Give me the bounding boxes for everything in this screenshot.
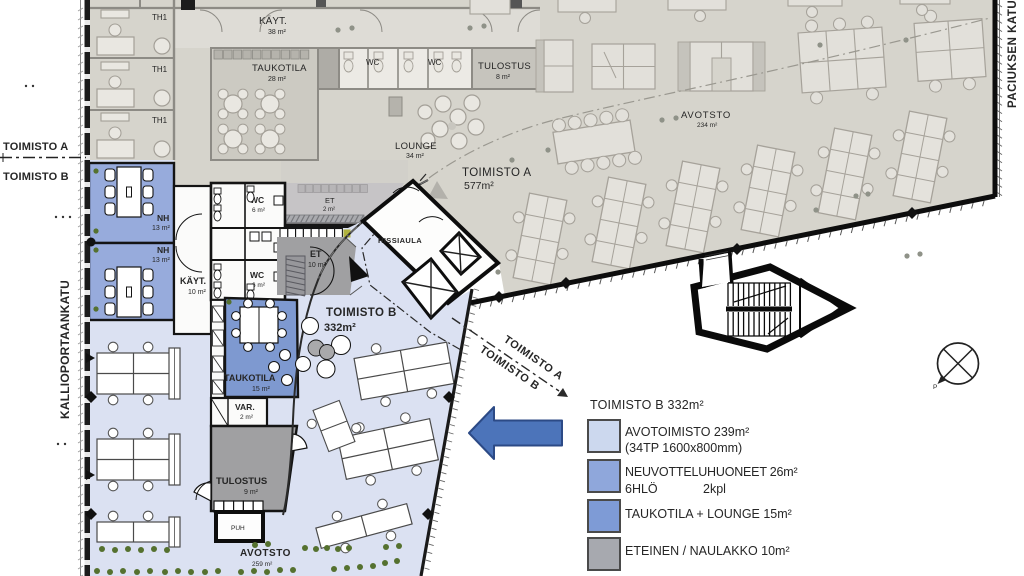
svg-text:ETEINEN / NAULAKKO 10m²: ETEINEN / NAULAKKO 10m² xyxy=(625,544,790,558)
svg-text:TOIMISTO A: TOIMISTO A xyxy=(462,167,531,179)
svg-text:KÄYT.: KÄYT. xyxy=(180,276,206,286)
svg-text:259 m²: 259 m² xyxy=(252,561,273,568)
svg-text:TH1: TH1 xyxy=(152,13,168,22)
svg-text:VAR.: VAR. xyxy=(235,402,255,412)
svg-text:PUH: PUH xyxy=(231,525,245,532)
svg-text:332m²: 332m² xyxy=(324,322,356,334)
svg-text:8 m²: 8 m² xyxy=(496,74,511,81)
svg-text:TULOSTUS: TULOSTUS xyxy=(216,476,267,487)
svg-text:HISSIAULA: HISSIAULA xyxy=(378,236,422,245)
svg-text:ET: ET xyxy=(325,196,335,205)
svg-text:PACIUKSEN KATU: PACIUKSEN KATU xyxy=(1007,0,1019,108)
svg-text:TAUKOTILA + LOUNGE 15m²: TAUKOTILA + LOUNGE 15m² xyxy=(625,507,792,521)
svg-text:P: P xyxy=(933,384,937,391)
svg-text:AVOTSTO: AVOTSTO xyxy=(240,548,291,559)
svg-text:28 m²: 28 m² xyxy=(268,76,287,83)
svg-text:13 m²: 13 m² xyxy=(152,257,171,264)
svg-text:34 m²: 34 m² xyxy=(406,153,425,160)
svg-text:2 m²: 2 m² xyxy=(323,207,335,213)
svg-text:9 m²: 9 m² xyxy=(244,489,259,496)
svg-text:6HLÖ: 6HLÖ xyxy=(625,482,658,496)
svg-text:10 m²: 10 m² xyxy=(188,289,207,296)
svg-text:TOIMISTO B 332m²: TOIMISTO B 332m² xyxy=(590,398,704,412)
svg-text:TAUKOTILA: TAUKOTILA xyxy=(252,63,307,74)
svg-text:577m²: 577m² xyxy=(464,180,494,192)
svg-text:TOIMISTO B: TOIMISTO B xyxy=(3,171,69,183)
svg-text:AVOTOIMISTO 239m²: AVOTOIMISTO 239m² xyxy=(625,425,749,439)
svg-text:TULOSTUS: TULOSTUS xyxy=(478,61,531,72)
svg-text:(34TP 1600x800mm): (34TP 1600x800mm) xyxy=(625,441,742,455)
svg-text:WC: WC xyxy=(366,58,380,67)
svg-text:15 m²: 15 m² xyxy=(252,386,271,393)
svg-text:AVOTSTO: AVOTSTO xyxy=(681,110,731,121)
svg-text:WC: WC xyxy=(428,58,442,67)
svg-text:WC: WC xyxy=(250,270,264,280)
svg-text:ET: ET xyxy=(310,249,322,259)
svg-text:38 m²: 38 m² xyxy=(268,29,287,36)
svg-text:2 m²: 2 m² xyxy=(240,414,254,421)
svg-text:2kpl: 2kpl xyxy=(703,482,726,496)
svg-text:LOUNGE: LOUNGE xyxy=(395,141,437,152)
svg-text:6 m²: 6 m² xyxy=(252,207,266,214)
svg-text:KALLIOPORTAANKATU: KALLIOPORTAANKATU xyxy=(58,280,72,419)
svg-text:NEUVOTTELUHUONEET 26m²: NEUVOTTELUHUONEET 26m² xyxy=(625,465,798,479)
svg-text:234 m²: 234 m² xyxy=(697,122,718,129)
svg-text:NH: NH xyxy=(157,245,169,255)
svg-text:TOIMISTO B: TOIMISTO B xyxy=(326,307,397,319)
svg-text:13 m²: 13 m² xyxy=(152,225,171,232)
svg-text:TH1: TH1 xyxy=(152,116,168,125)
svg-text:NH: NH xyxy=(157,213,169,223)
svg-text:TAUKOTILA: TAUKOTILA xyxy=(224,373,276,383)
svg-text:TOIMISTO A: TOIMISTO A xyxy=(3,141,68,153)
svg-text:TH1: TH1 xyxy=(152,65,168,74)
